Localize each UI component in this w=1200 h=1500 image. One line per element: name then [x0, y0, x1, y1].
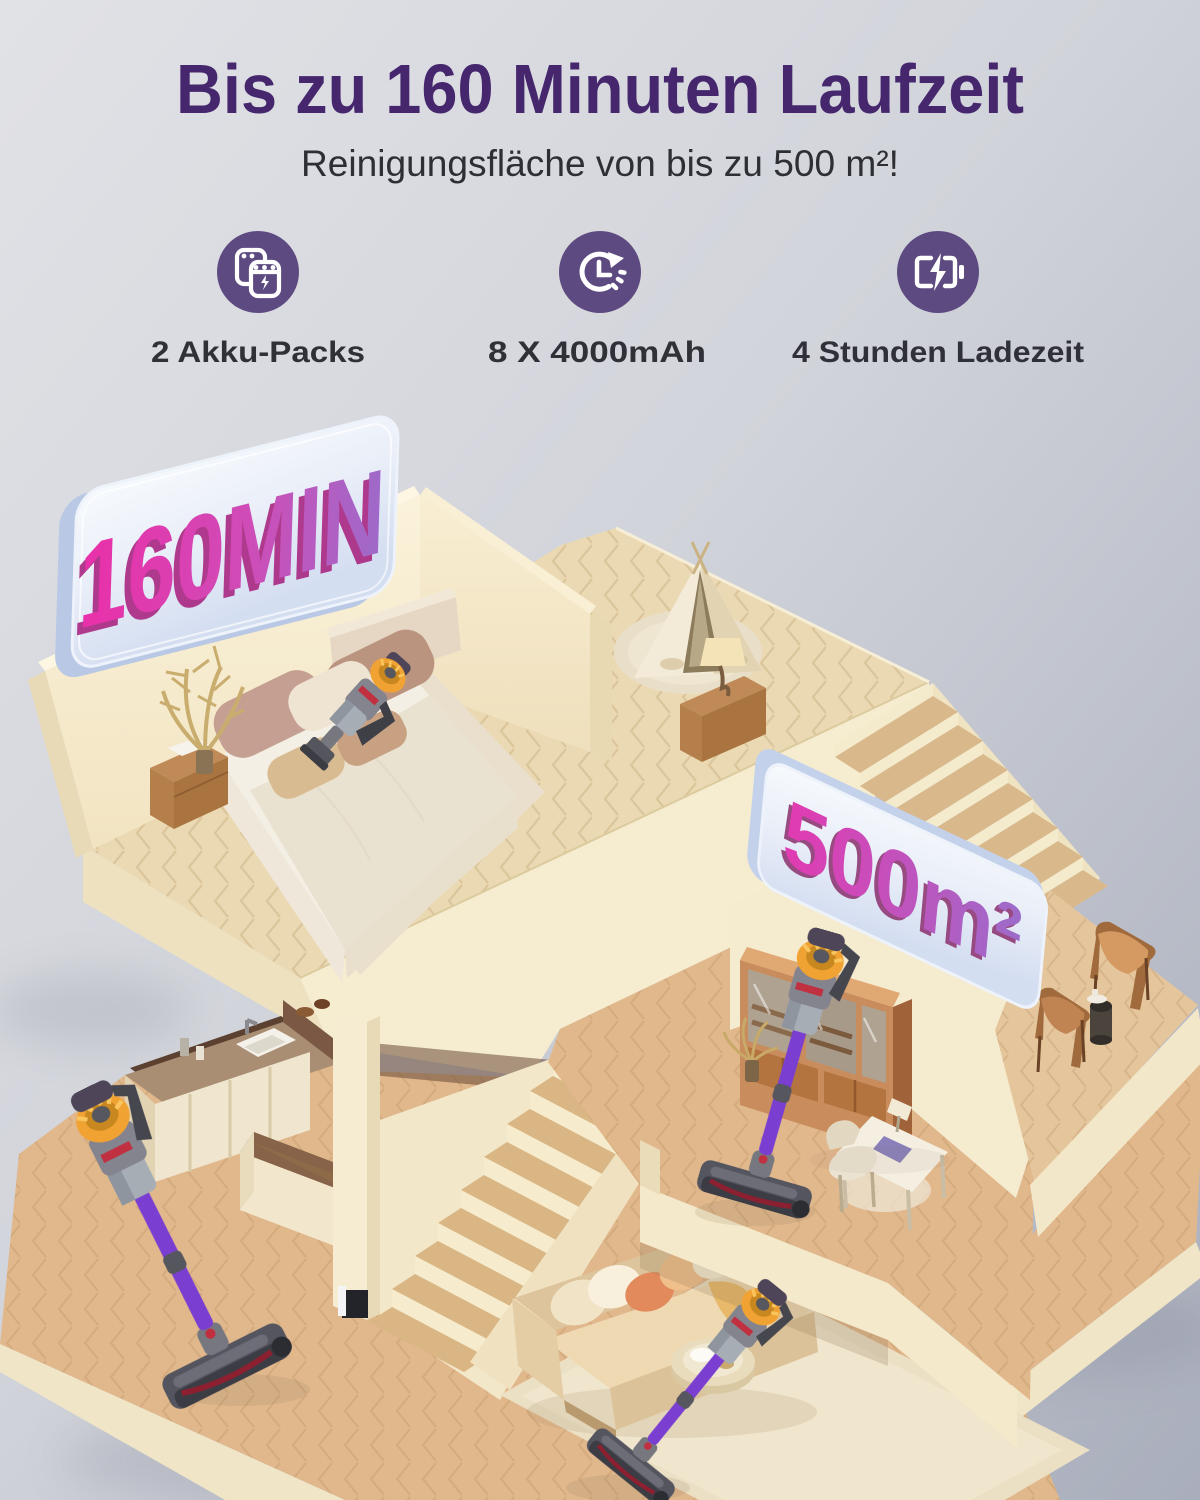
- svg-text:2 Akku-Packs: 2 Akku-Packs: [151, 336, 365, 369]
- svg-text:Bis zu 160 Minuten Laufzeit: Bis zu 160 Minuten Laufzeit: [176, 50, 1024, 128]
- svg-text:8 X 4000mAh: 8 X 4000mAh: [488, 336, 706, 369]
- svg-text:Reinigungsfläche von bis zu 50: Reinigungsfläche von bis zu 500 m²!: [301, 143, 899, 184]
- svg-text:4 Stunden Ladezeit: 4 Stunden Ladezeit: [792, 336, 1084, 369]
